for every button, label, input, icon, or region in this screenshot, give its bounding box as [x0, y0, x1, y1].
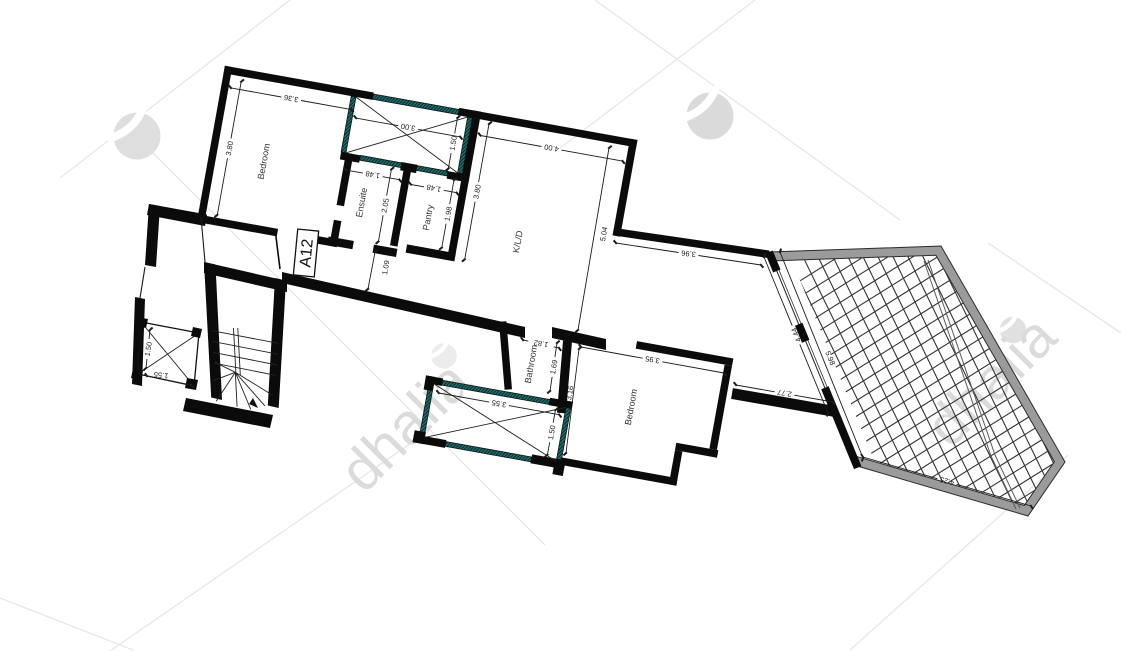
svg-text:5.04: 5.04: [598, 226, 609, 242]
svg-text:Pantry: Pantry: [421, 203, 436, 231]
svg-text:3.00: 3.00: [400, 121, 416, 132]
svg-text:3.16: 3.16: [564, 385, 575, 401]
svg-text:1.55: 1.55: [153, 370, 169, 381]
svg-text:Bedroom: Bedroom: [256, 143, 272, 181]
svg-text:1.09: 1.09: [380, 260, 391, 276]
svg-text:2.05: 2.05: [379, 198, 390, 214]
svg-text:1.48: 1.48: [365, 169, 381, 180]
svg-text:A12: A12: [297, 238, 317, 268]
svg-text:1.69: 1.69: [548, 359, 559, 375]
svg-text:1.50: 1.50: [546, 425, 557, 441]
svg-text:1.48: 1.48: [426, 183, 442, 194]
svg-text:K/L/D: K/L/D: [511, 229, 525, 253]
svg-text:3.36: 3.36: [283, 93, 299, 104]
svg-text:Bedroom: Bedroom: [623, 388, 639, 426]
svg-text:3.96: 3.96: [681, 248, 696, 258]
svg-text:2.77: 2.77: [777, 388, 793, 399]
svg-text:1.98: 1.98: [442, 206, 453, 222]
svg-text:3.95: 3.95: [645, 354, 661, 365]
svg-text:1.50: 1.50: [447, 135, 458, 151]
svg-text:3.80: 3.80: [471, 184, 482, 200]
svg-text:4.00: 4.00: [544, 142, 560, 153]
svg-text:Ensuite: Ensuite: [354, 187, 369, 218]
svg-text:Bathroom: Bathroom: [523, 344, 540, 384]
svg-text:1.50: 1.50: [143, 341, 154, 357]
svg-text:dhalia: dhalia: [327, 348, 483, 504]
svg-text:3.80: 3.80: [224, 140, 235, 156]
svg-text:3.55: 3.55: [491, 398, 507, 409]
